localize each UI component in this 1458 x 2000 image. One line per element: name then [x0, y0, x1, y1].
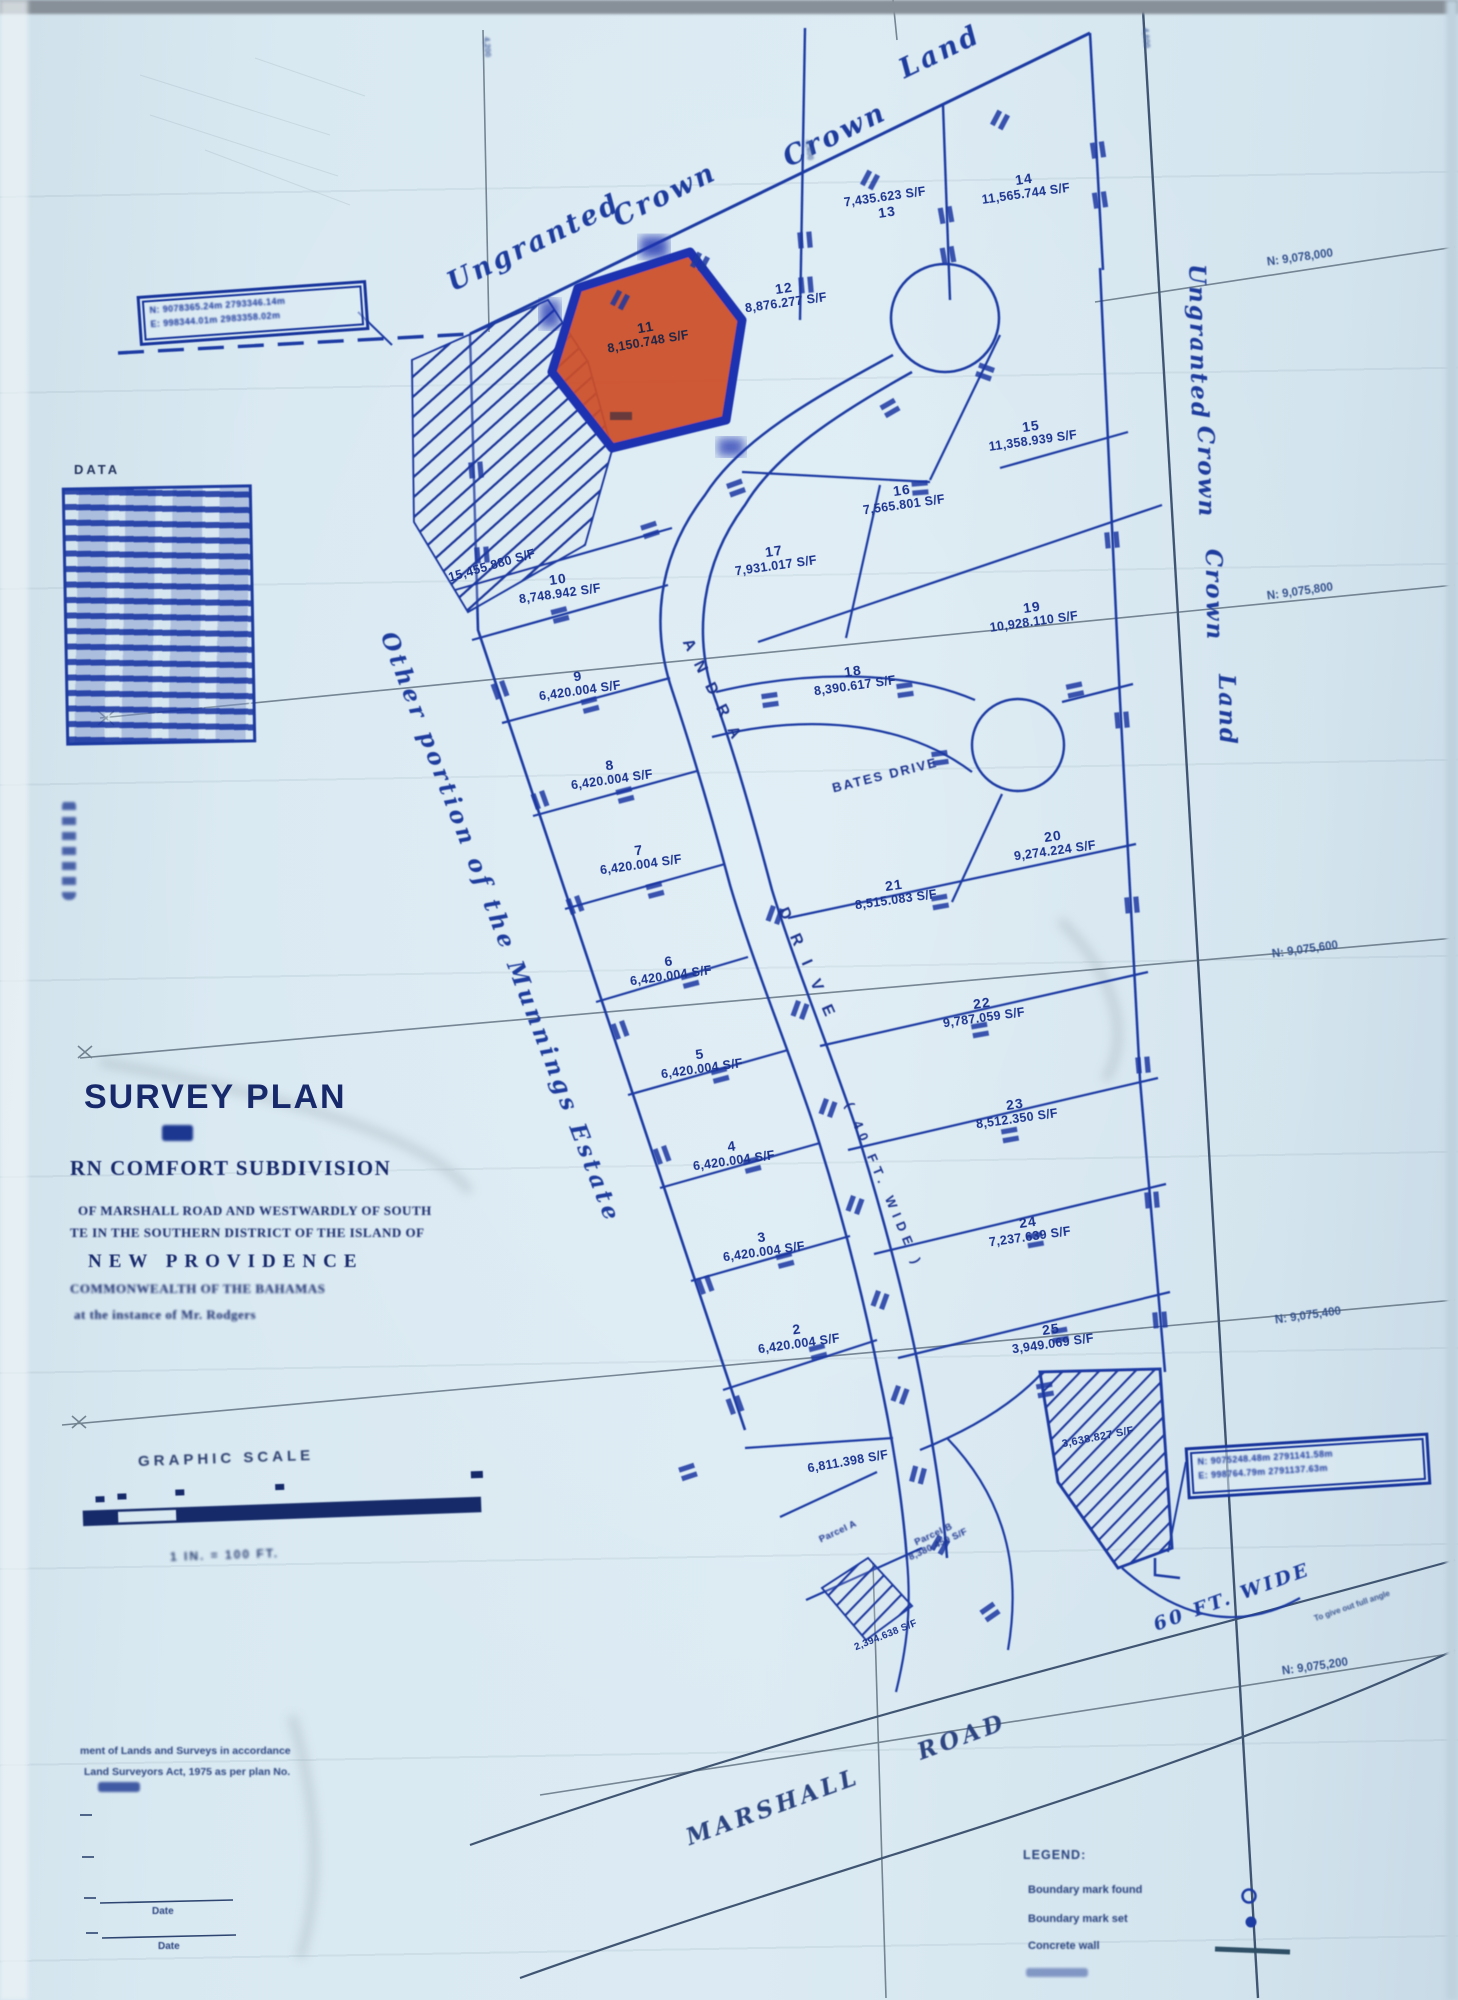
legend-item-boundary-mark-found: Boundary mark found: [1028, 1884, 1142, 1896]
country-line: COMMONWEALTH OF THE BAHAMAS: [70, 1281, 590, 1297]
title-of-word: OF: [162, 1125, 193, 1141]
signature-rules: [80, 1815, 236, 1938]
crown-land-label-right: Crown: [1192, 426, 1221, 519]
data-table-heading: DATA: [74, 462, 120, 477]
graphic-scale-bar: [83, 1471, 484, 1525]
island-name: NEW PROVIDENCE: [88, 1251, 590, 1273]
legend-heading: LEGEND:: [1023, 1848, 1086, 1862]
crown-land-label-right: Land: [1213, 674, 1241, 746]
illegible-smudge: [98, 1782, 140, 1792]
plan-title: SURVEY PLAN: [84, 1078, 590, 1117]
photo-edge-left: [0, 0, 28, 2000]
boundary-mark-set-symbol: [1246, 1917, 1257, 1928]
location-line-1: OF MARSHALL ROAD AND WESTWARDLY OF SOUTH: [78, 1203, 590, 1219]
location-line-2: TE IN THE SOUTHERN DISTRICT OF THE ISLAN…: [70, 1225, 590, 1241]
legend-item-boundary-mark-set: Boundary mark set: [1028, 1913, 1128, 1925]
concrete-wall-symbol: [1215, 1949, 1290, 1952]
certification-line-2: Land Surveyors Act, 1975 as per plan No.: [84, 1766, 290, 1778]
legend-item-partial: [1026, 1968, 1088, 1977]
survey-plan-photo: N: 9078365.24m 2793346.14m E: 998344.01m…: [0, 0, 1458, 2000]
photo-artifacts: [140, 58, 365, 205]
paper-creases: [100, 920, 1118, 1958]
instance-line: at the instance of Mr. Rodgers: [74, 1307, 590, 1323]
boundary-mark-found-symbol: [1243, 1890, 1256, 1903]
east-grid-tick: 4,600: [1141, 28, 1152, 49]
crown-land-label-right: Crown: [1200, 549, 1229, 642]
date-label-2: Date: [158, 1941, 180, 1952]
date-label-1: Date: [152, 1906, 174, 1917]
photo-edge-top: [0, 0, 1458, 14]
subdivision-name: RN COMFORT SUBDIVISION: [70, 1156, 590, 1181]
data-table: [62, 484, 256, 745]
east-grid-tick: 4,200: [482, 37, 492, 58]
certification-line-1: ment of Lands and Surveys in accordance: [80, 1745, 291, 1757]
legend-item-concrete-wall: Concrete wall: [1028, 1940, 1100, 1952]
title-block: SURVEY PLAN OF RN COMFORT SUBDIVISION OF…: [70, 1078, 590, 1323]
crown-land-label-right: Ungranted: [1183, 264, 1213, 420]
left-margin-smudge: [62, 800, 76, 900]
photo-edge-right: [1446, 0, 1458, 2000]
